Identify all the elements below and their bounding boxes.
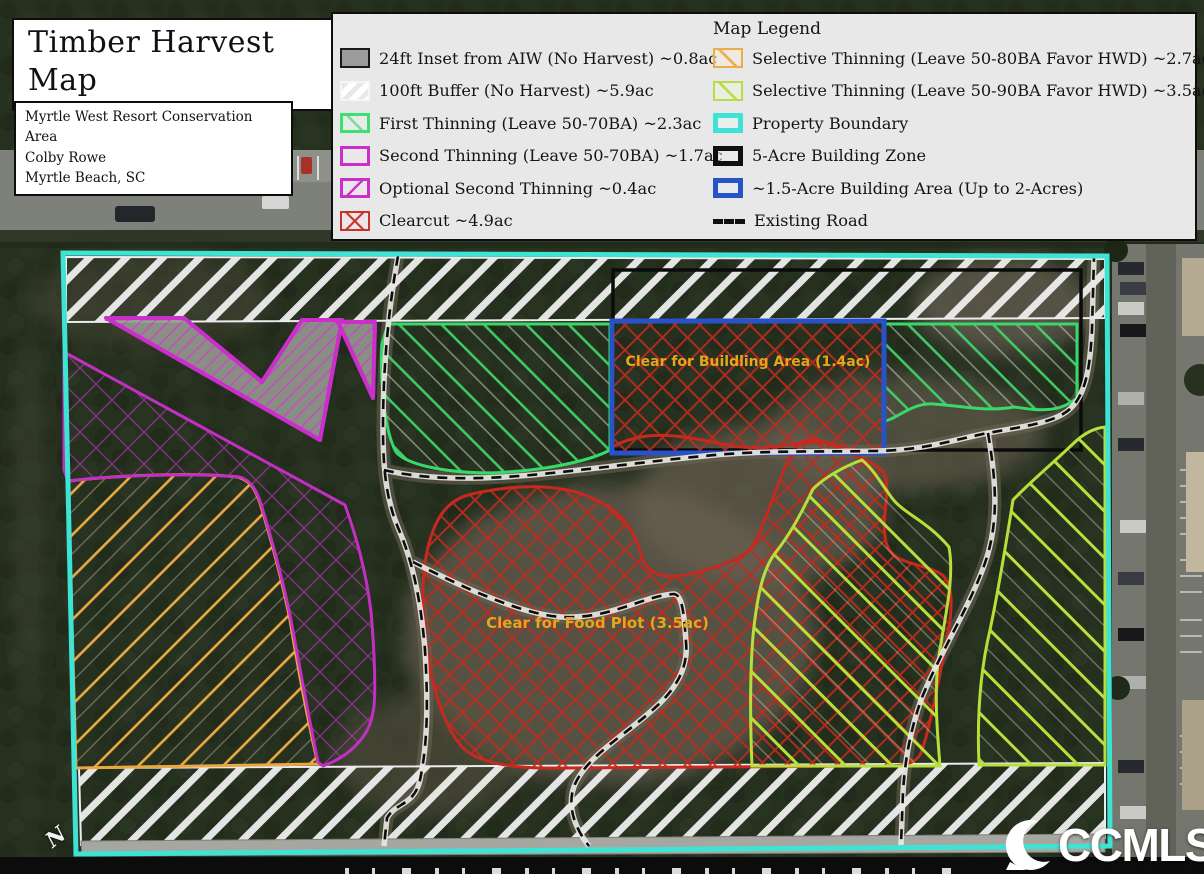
ccmls-text: CCMLS [1058,822,1204,868]
right-parking-strip [1104,238,1204,857]
yellowgreen-hatch-swatch-icon [713,81,743,101]
orange-hatch-swatch-icon [713,48,743,68]
legend-row: Second Thinning (Leave 50-70BA) ~1.7ac [339,140,712,173]
legend-label: Property Boundary [752,114,908,133]
legend-column-left: 24ft Inset from AIW (No Harvest) ~0.8ac … [339,42,712,237]
legend-title: Map Legend [339,19,1195,39]
buffer-100ft-bottom [79,763,1105,845]
page-title: Timber Harvest Map [28,25,274,98]
info-line-area: Myrtle West Resort Conservation Area [25,107,283,148]
first-thinning-zone-left [382,324,610,473]
ccmls-watermark: CCMLS [996,818,1204,872]
building-area-label: Clear for Buildling Area (1.4ac) [612,354,884,370]
first-thinning-zone-right [884,324,1077,421]
legend-label: Second Thinning (Leave 50-70BA) ~1.7ac [379,146,723,165]
map-title-box: Timber Harvest Map [12,18,342,111]
legend-row: First Thinning (Leave 50-70BA) ~2.3ac [339,107,712,140]
map-info-box: Myrtle West Resort Conservation Area Col… [14,101,293,196]
legend-label: Optional Second Thinning ~0.4ac [379,179,656,198]
map-legend: Map Legend 24ft Inset from AIW (No Harve… [331,12,1197,241]
legend-row: Selective Thinning (Leave 50-90BA Favor … [712,75,1204,108]
magenta-outline-swatch-icon [340,146,370,166]
legend-label: ~1.5-Acre Building Area (Up to 2-Acres) [752,179,1083,198]
legend-row: 5-Acre Building Zone [712,140,1204,173]
legend-row: 24ft Inset from AIW (No Harvest) ~0.8ac [339,42,712,75]
black-outline-swatch-icon [713,146,743,166]
white-hatch-swatch-icon [340,81,370,101]
buffer-100ft-top [66,257,1105,322]
legend-label: Existing Road [754,211,868,230]
clipped-text-fragments [345,868,965,874]
legend-row: ~1.5-Acre Building Area (Up to 2-Acres) [712,172,1204,205]
legend-row: Clearcut ~4.9ac [339,205,712,238]
legend-row: Optional Second Thinning ~0.4ac [339,172,712,205]
legend-label: Selective Thinning (Leave 50-90BA Favor … [752,81,1204,100]
legend-row: Existing Road [712,205,1204,238]
cyan-outline-swatch-icon [713,113,743,133]
green-hatch-swatch-icon [340,113,370,133]
dashed-road-swatch-icon [713,219,745,224]
info-line-city: Myrtle Beach, SC [25,168,283,188]
red-crosshatch-swatch-icon [340,211,370,231]
legend-label: Selective Thinning (Leave 50-80BA Favor … [752,49,1204,68]
building-area-rect [612,321,884,453]
legend-row: Property Boundary [712,107,1204,140]
food-plot-label: Clear for Food Plot (3.5ac) [455,614,740,632]
legend-label: 24ft Inset from AIW (No Harvest) ~0.8ac [379,49,717,68]
info-line-owner: Colby Rowe [25,148,283,168]
ccmls-logo-icon [996,818,1054,872]
legend-label: 100ft Buffer (No Harvest) ~5.9ac [379,81,654,100]
legend-row: Selective Thinning (Leave 50-80BA Favor … [712,42,1204,75]
magenta-hatch-swatch-icon [340,178,370,198]
blue-outline-swatch-icon [713,178,743,198]
gray-fill-swatch-icon [340,48,370,68]
timber-harvest-map: Timber Harvest Map Myrtle West Resort Co… [0,0,1204,874]
legend-row: 100ft Buffer (No Harvest) ~5.9ac [339,75,712,108]
legend-column-right: Selective Thinning (Leave 50-80BA Favor … [712,42,1204,237]
legend-label: Clearcut ~4.9ac [379,211,513,230]
legend-label: 5-Acre Building Zone [752,146,926,165]
legend-label: First Thinning (Leave 50-70BA) ~2.3ac [379,114,701,133]
